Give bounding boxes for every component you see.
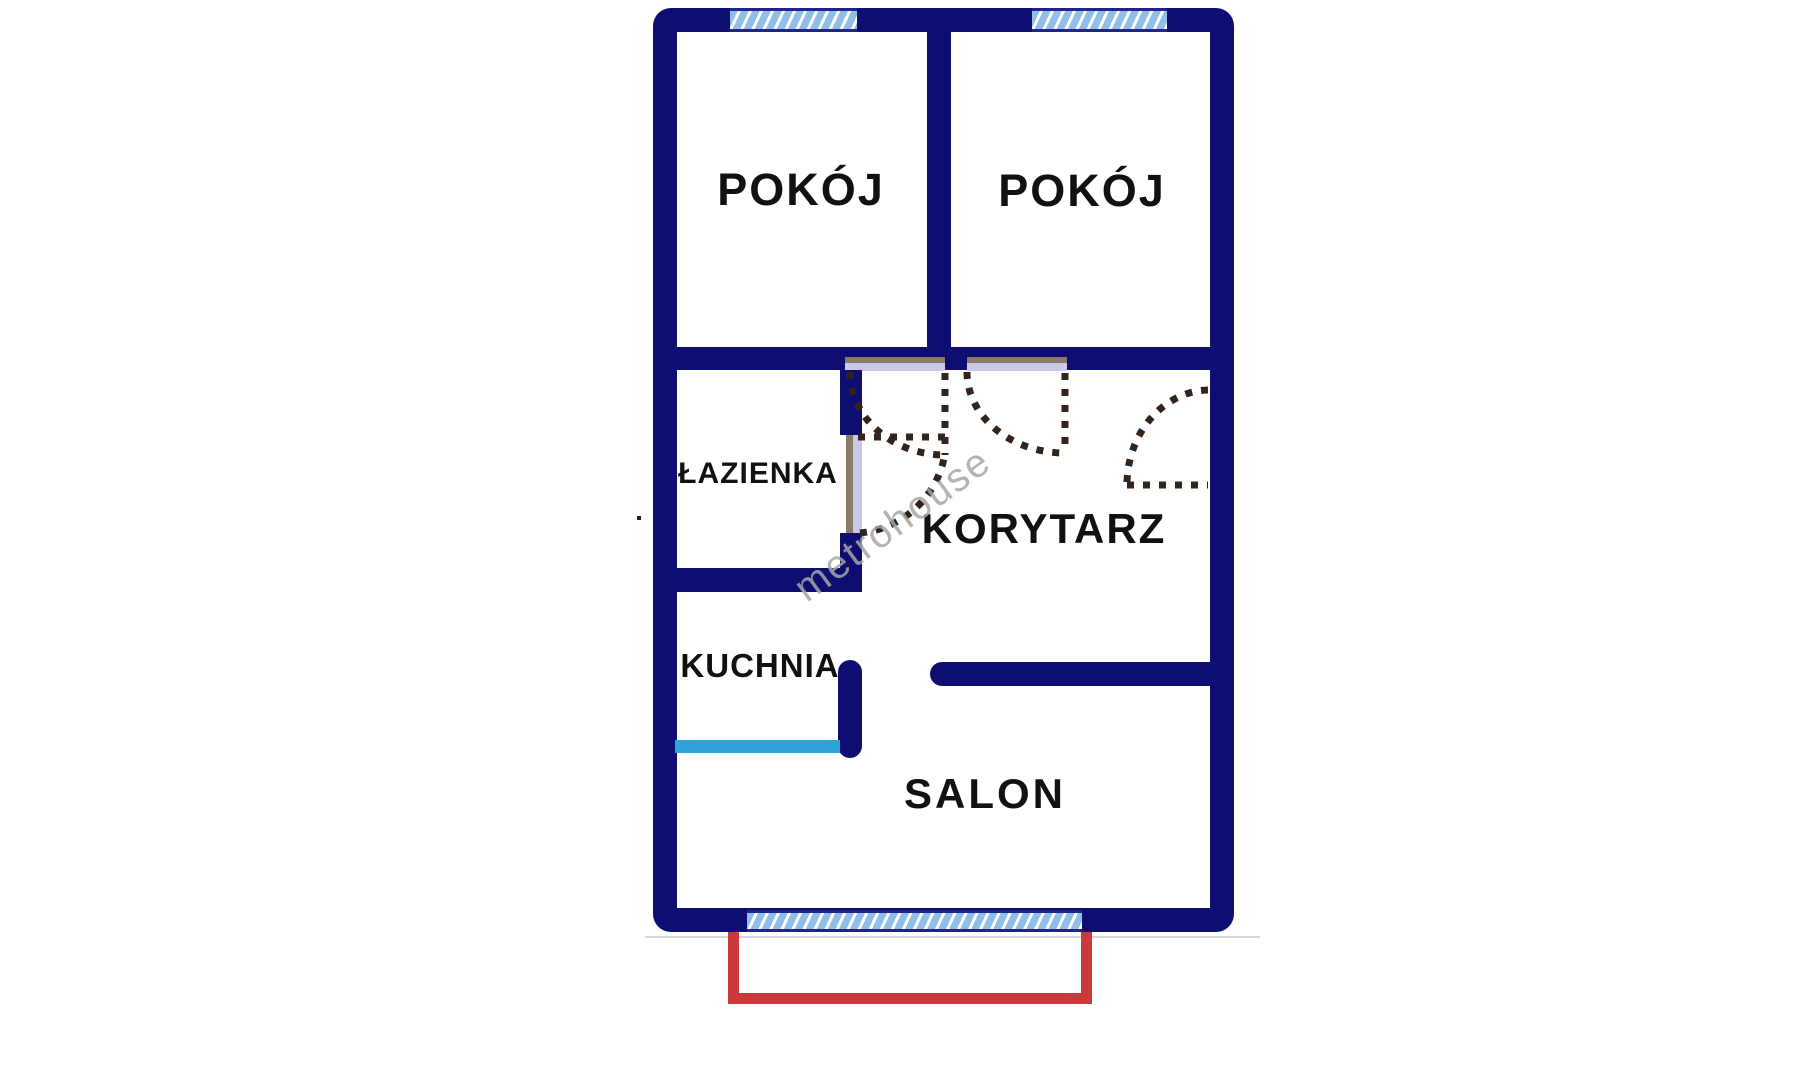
room-label-kuchnia: KUCHNIA [680,647,839,685]
room-label-salon: SALON [904,770,1066,818]
entrance-door-swing-arc [1127,390,1208,483]
room-label-korytarz: KORYTARZ [922,505,1167,553]
floor-plan-page: { "plan": { "type": "apartment-floor-pla… [0,0,1800,1080]
room-label-pokoj-2: POKÓJ [998,165,1166,217]
room-label-lazienka: ŁAZIENKA [678,457,838,491]
door2-swing-arc [967,372,1065,453]
room-label-pokoj-1: POKÓJ [717,164,885,216]
door1-swing-arc [850,372,945,455]
